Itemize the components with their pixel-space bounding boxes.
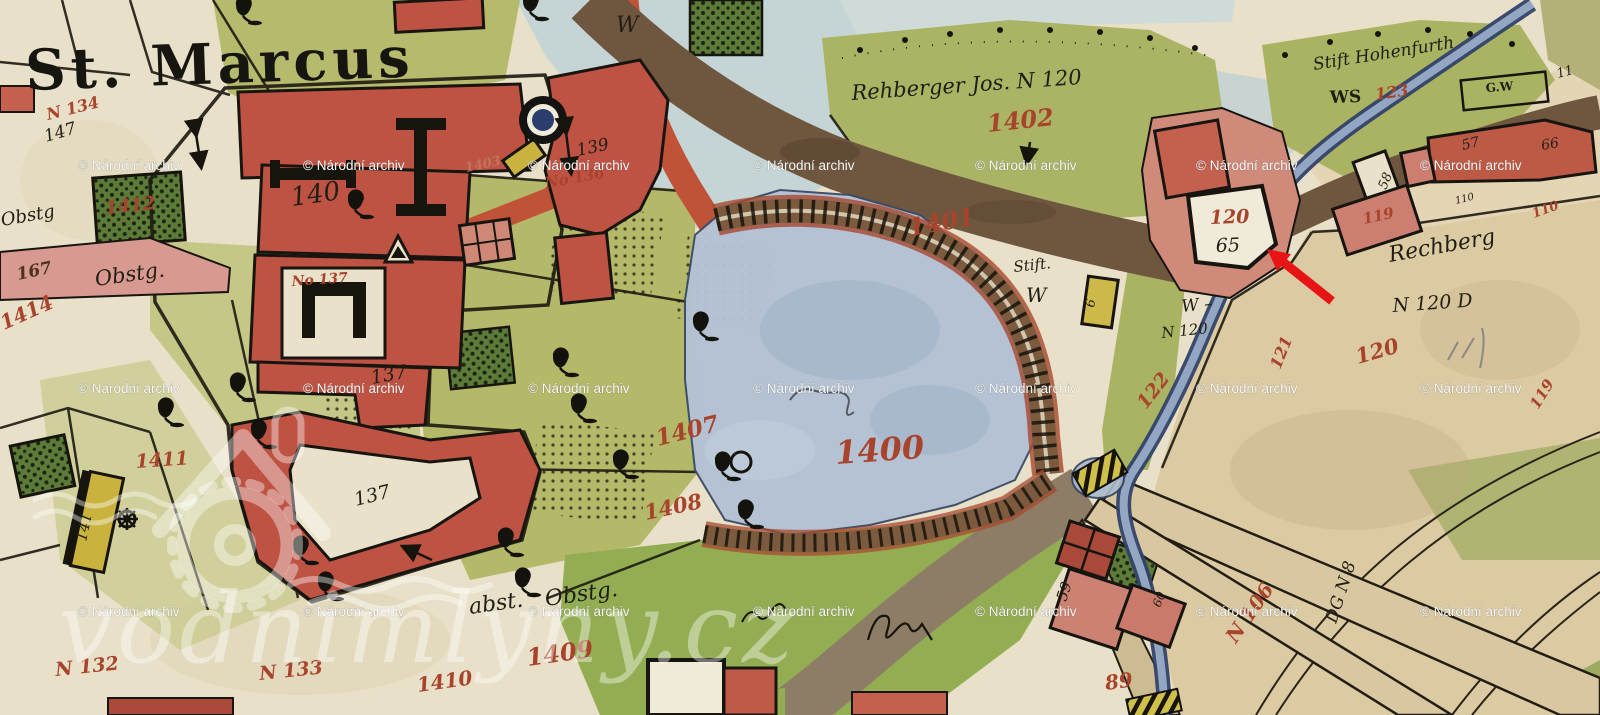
building-bottomleft: [108, 698, 233, 715]
dark-garden-left: [10, 435, 75, 497]
map-label-h66: 66: [1540, 135, 1560, 154]
map-label-title: St. Marcus: [24, 24, 415, 104]
dark-garden-top: [690, 0, 762, 55]
map-label-wTop: W: [616, 13, 641, 38]
map-label-p1411: 1411: [135, 447, 189, 473]
building-bottomedge: [852, 692, 947, 715]
archive-watermark: © Národní archiv: [753, 381, 855, 396]
archive-watermark: © Národní archiv: [1420, 381, 1522, 396]
archive-watermark: © Národní archiv: [753, 158, 855, 173]
archive-watermark: © Národní archiv: [975, 381, 1077, 396]
site-watermark-text: vodnimlyny.cz: [58, 572, 797, 685]
map-label-w120w: W –: [1180, 294, 1213, 317]
map-label-p1400: 1400: [834, 428, 925, 472]
map-label-b120: 120: [1209, 206, 1249, 229]
pencil-shading: [1230, 410, 1470, 530]
archive-watermark: © Národní archiv: [1196, 604, 1298, 619]
archive-watermark: © Národní archiv: [975, 604, 1077, 619]
archive-watermark: © Národní archiv: [528, 381, 630, 396]
map-label-gw: G.W: [1485, 79, 1514, 95]
historical-map: St. Marcus140147N 13414121414167ObstgObs…: [0, 0, 1600, 715]
archive-watermark: © Národní archiv: [528, 158, 630, 173]
archive-watermark: © Národní archiv: [303, 158, 405, 173]
archive-watermark: © Národní archiv: [303, 381, 405, 396]
gate-building-south: [555, 232, 614, 303]
map-viewport: St. Marcus140147N 13414121414167ObstgObs…: [0, 0, 1600, 715]
archive-watermark: © Národní archiv: [1420, 158, 1522, 173]
map-label-h65b: 65: [1215, 234, 1240, 257]
map-label-p89: 89: [1102, 667, 1134, 695]
archive-watermark: © Národní archiv: [1196, 158, 1298, 173]
map-label-stiftW: W: [1026, 283, 1048, 307]
map-label-ws: WS: [1328, 87, 1361, 108]
archive-watermark: © Národní archiv: [78, 381, 180, 396]
archive-watermark: © Národní archiv: [1420, 604, 1522, 619]
archive-watermark: © Národní archiv: [78, 158, 180, 173]
archive-watermark: © Národní archiv: [975, 158, 1077, 173]
archive-watermark: © Národní archiv: [1196, 381, 1298, 396]
